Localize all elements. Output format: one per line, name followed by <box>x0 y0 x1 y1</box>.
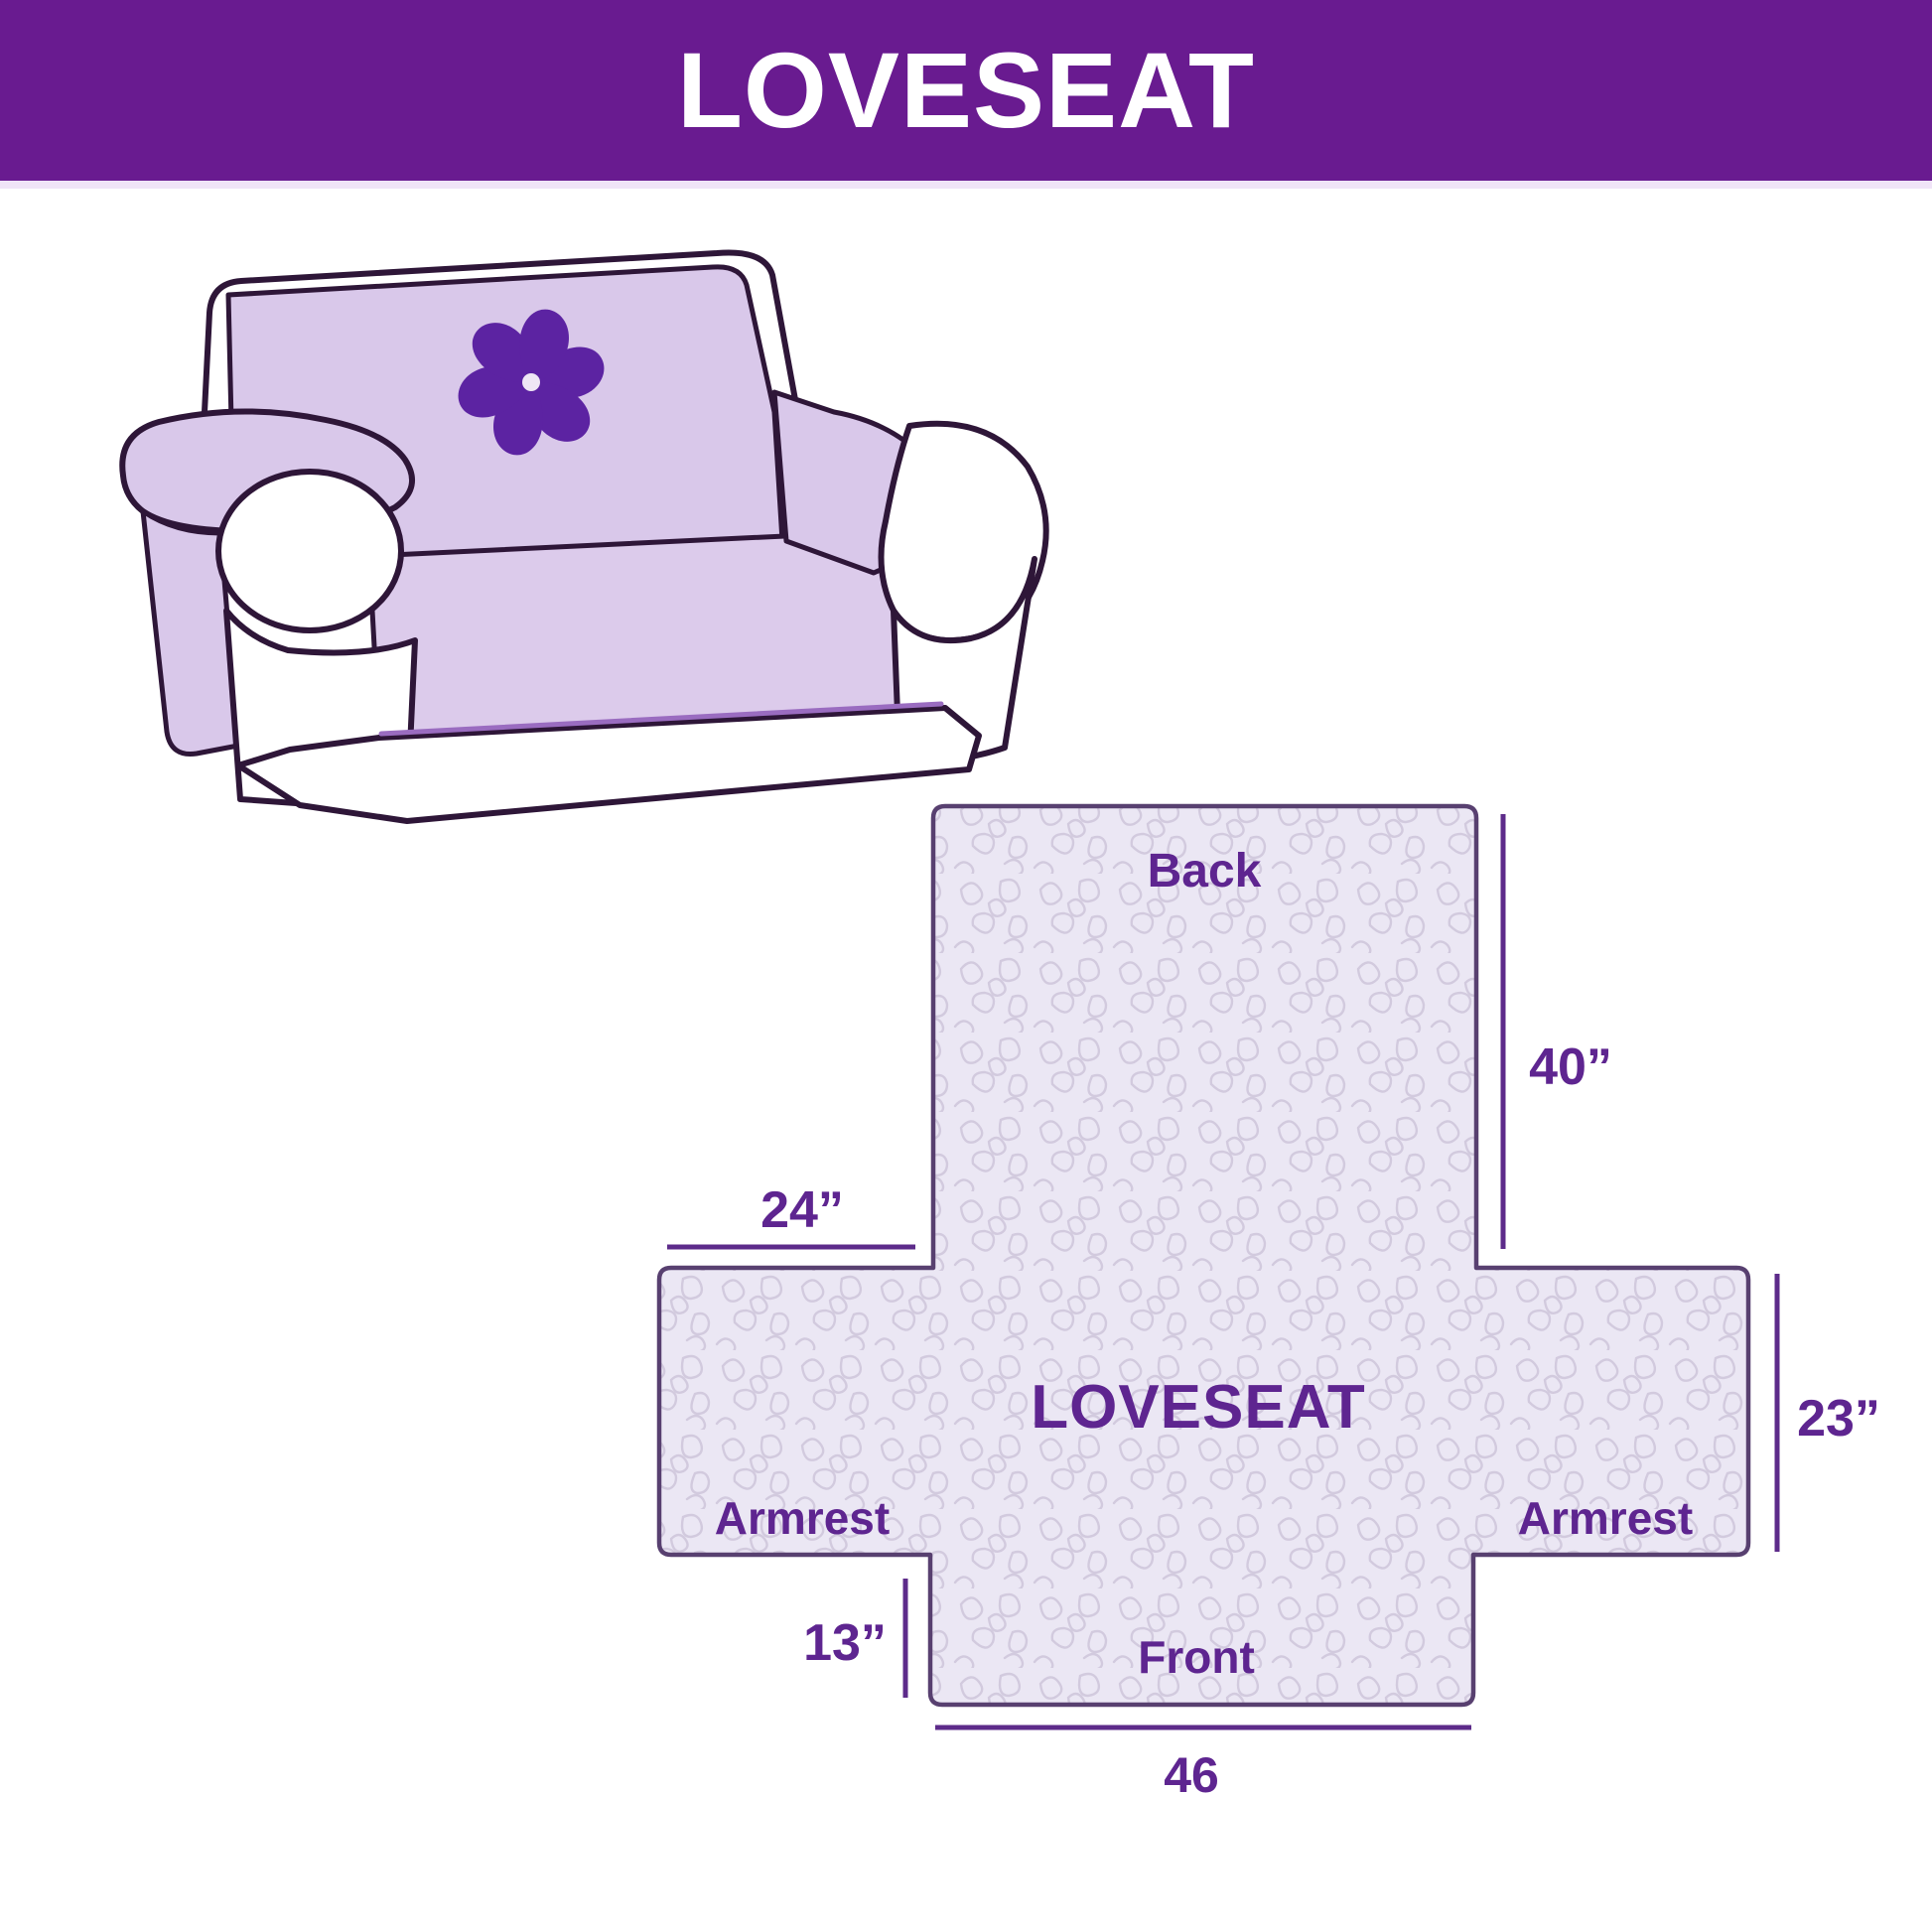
back-panel-label: Back <box>1148 848 1262 896</box>
dim-back-height: 40” <box>1529 1041 1612 1093</box>
header-bar: LOVESEAT <box>0 0 1932 181</box>
dim-armrest-height: 23” <box>1797 1393 1880 1445</box>
front-panel-label: Front <box>1138 1634 1255 1680</box>
header-title: LOVESEAT <box>677 37 1255 144</box>
sofa-left-arm <box>218 472 401 630</box>
dim-armrest-top-width: 24” <box>760 1184 844 1236</box>
illustration-layer <box>0 0 1932 1932</box>
dim-front-width: 46 <box>1164 1750 1219 1800</box>
armrest-right-label: Armrest <box>1518 1495 1693 1541</box>
armrest-left-label: Armrest <box>715 1495 890 1541</box>
page: LOVESEAT Back LOVESEAT Armrest Armrest F… <box>0 0 1932 1932</box>
dim-front-drop: 13” <box>803 1617 887 1669</box>
cover-diagram-shape <box>659 806 1748 1705</box>
sofa-illustration <box>122 252 1045 821</box>
product-label: LOVESEAT <box>1031 1377 1366 1439</box>
